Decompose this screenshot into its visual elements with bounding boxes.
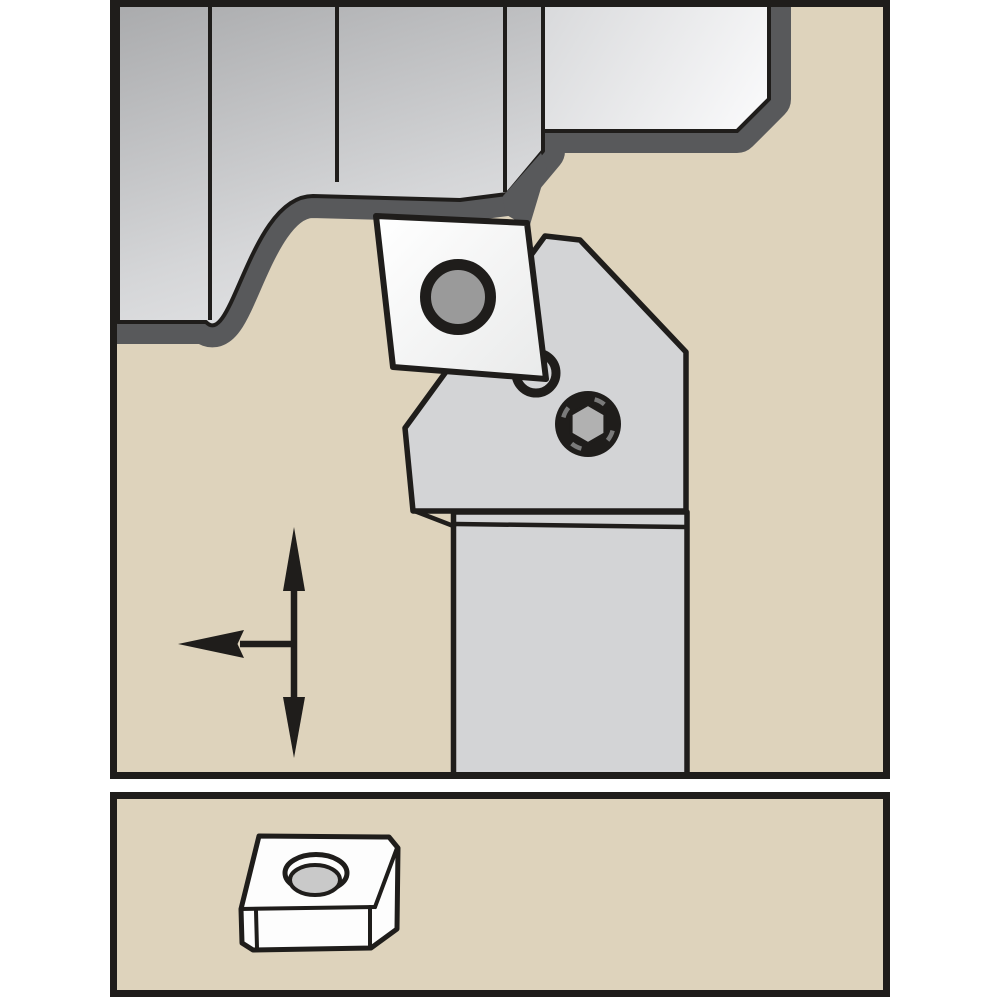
- spare-hole-bore: [290, 865, 340, 895]
- main-panel: Turning operation — toolholder engaged w…: [110, 0, 890, 779]
- toolholder-diagram: Turning operation — toolholder engaged w…: [0, 0, 1000, 1000]
- spare-insert-front-top-edge: [241, 907, 375, 909]
- clamp-screw: Hex-socket clamp screw: [555, 391, 621, 457]
- shank-body: [454, 512, 688, 776]
- cutting-insert: Indexable cutting insert Insert clamping…: [376, 216, 546, 379]
- detail-panel-background: [110, 792, 890, 997]
- diagram-page: Turning operation — toolholder engaged w…: [0, 0, 1000, 1000]
- toolholder-shank: Toolholder shank: [412, 510, 687, 776]
- spare-insert-left-corner-edge: [256, 911, 257, 948]
- spare-insert: Indexable insert, 3-D detail view Insert…: [241, 836, 398, 950]
- detail-panel: Indexable insert — detail view Indexable…: [110, 792, 890, 997]
- spare-insert-hole: Insert center hole (countersunk): [285, 855, 347, 896]
- insert-hole: Insert clamping hole: [426, 265, 491, 330]
- workpiece-step-block: Workpiece shoulder block (chamfered): [543, 5, 769, 131]
- shank-top-edge-line: [456, 524, 685, 527]
- hex-socket-icon: [571, 405, 605, 444]
